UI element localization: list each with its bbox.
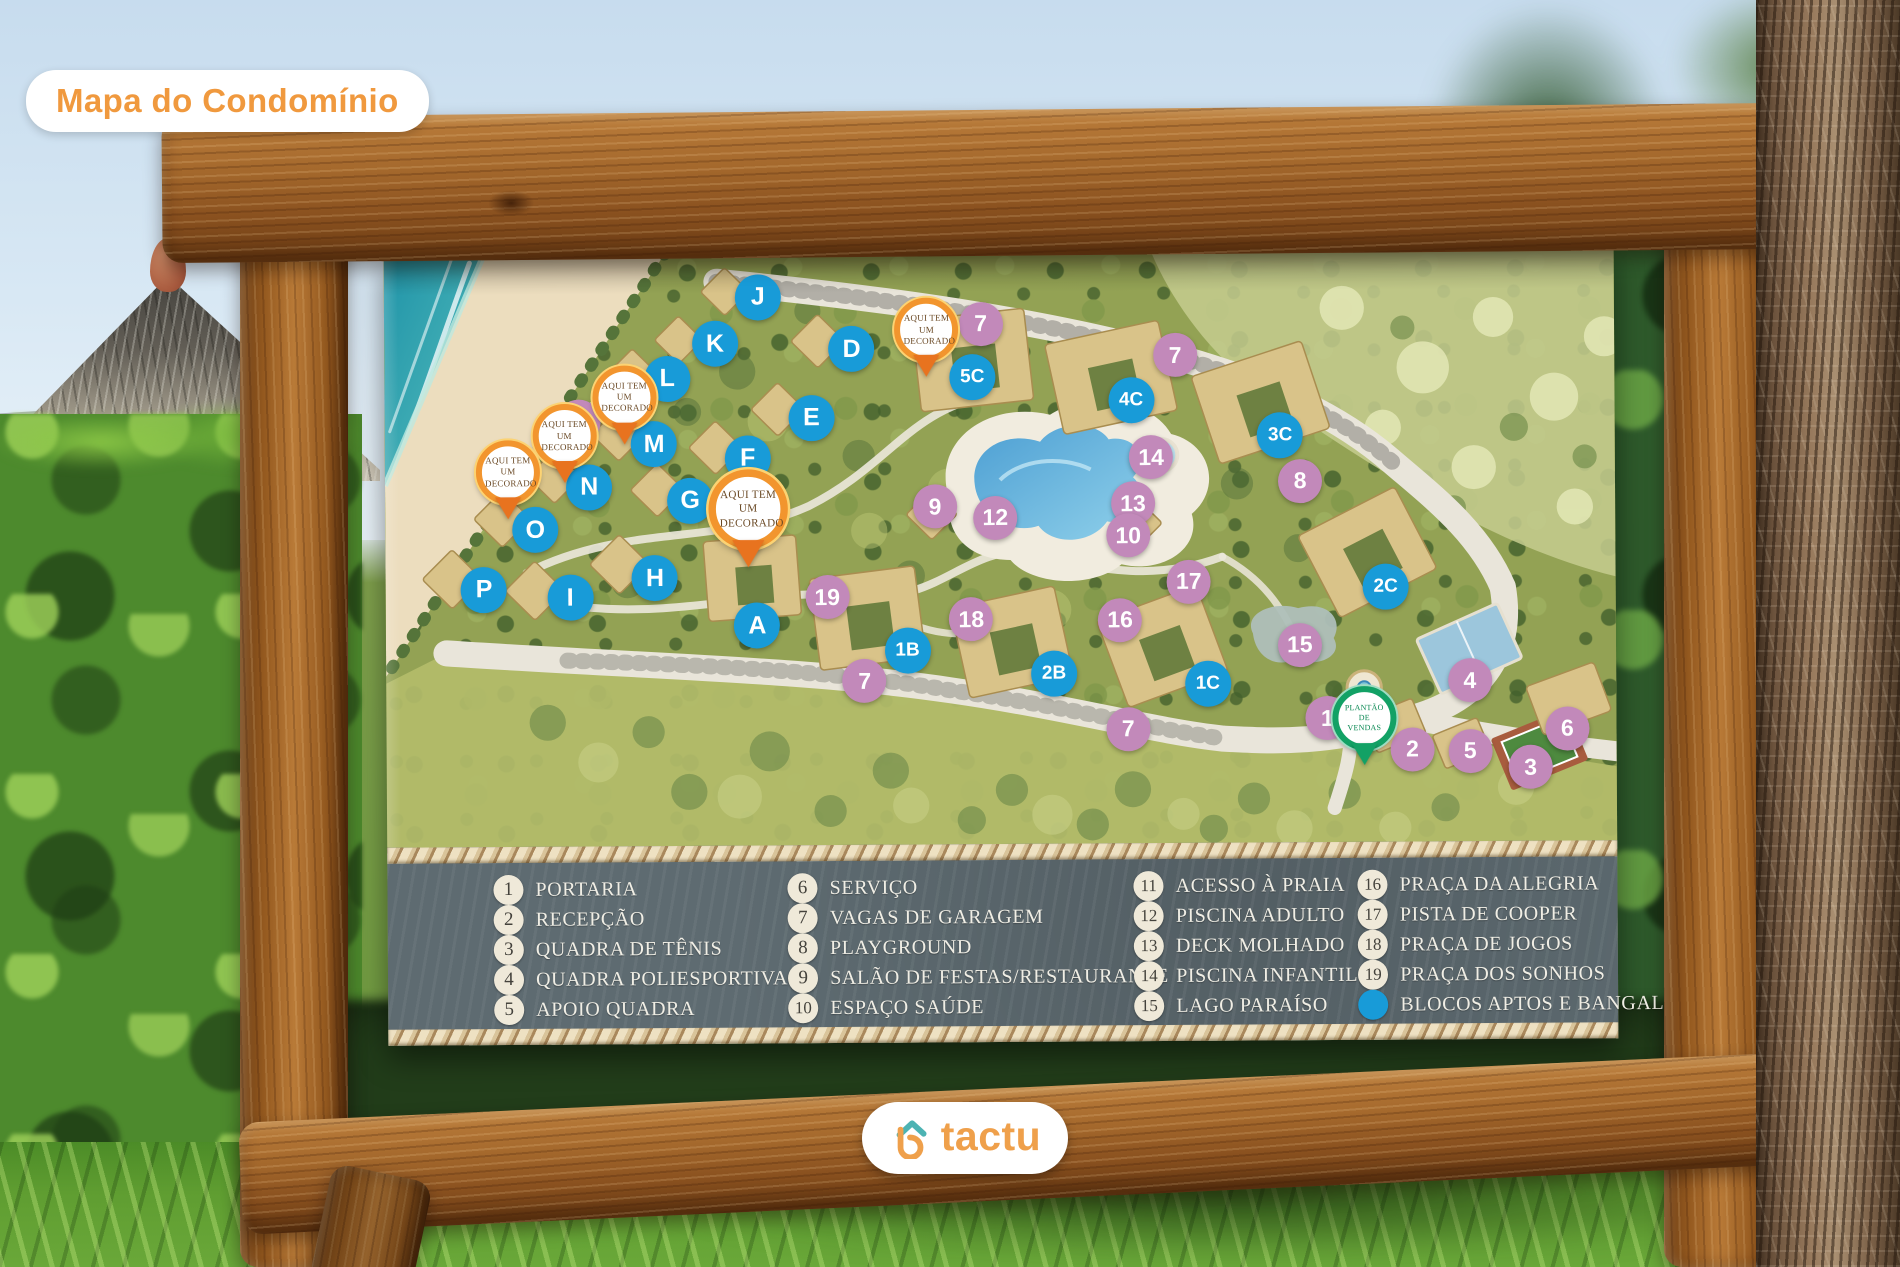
legend-item: 13DECK MOLHADO: [1134, 930, 1358, 961]
pin-circle: AQUI TEM UM DECORADO: [894, 298, 958, 362]
legend-item: 18PRAÇA DE JOGOS: [1358, 928, 1691, 960]
pin-circle: AQUI TEM UM DECORADO: [592, 365, 656, 429]
map-marker-block-4C: 4C: [1108, 377, 1154, 423]
pin-label: AQUI TEM UM DECORADO: [541, 419, 587, 453]
photo-of-sign: JKLMNOPIHADEFG5C4C3C2C1C2B1B771114891213…: [0, 0, 1900, 1267]
blocks-dot-icon: [1358, 990, 1388, 1020]
legend-item: 12PISCINA ADULTO: [1134, 900, 1358, 931]
pin-label: AQUI TEM UM DECORADO: [903, 313, 949, 347]
legend-item: 3QUADRA DE TÊNIS: [494, 933, 788, 965]
legend-label: PISTA DE COOPER: [1400, 902, 1578, 926]
map-poster: JKLMNOPIHADEFG5C4C3C2C1C2B1B771114891213…: [384, 246, 1619, 1045]
legend-label: QUADRA DE TÊNIS: [536, 937, 723, 961]
legend-columns: 1PORTARIA2RECEPÇÃO3QUADRA DE TÊNIS4QUADR…: [387, 856, 1618, 1030]
pin-label: AQUI TEM UM DECORADO: [719, 488, 776, 530]
legend-number: 17: [1358, 900, 1388, 930]
map-marker-block-1B: 1B: [884, 627, 930, 673]
palm-trunk: [1756, 0, 1900, 1267]
map-marker-amenity-10: 10: [1106, 513, 1150, 557]
map-marker-amenity-19: 19: [805, 575, 849, 619]
legend-item: 15LAGO PARAÍSO: [1134, 990, 1358, 1021]
site-map: JKLMNOPIHADEFG5C4C3C2C1C2B1B771114891213…: [384, 246, 1618, 848]
legend-item: BLOCOS APTOS E BANGALÔS: [1358, 988, 1691, 1020]
legend-item: 17PISTA DE COOPER: [1358, 898, 1691, 930]
legend-item: 16PRAÇA DA ALEGRIA: [1358, 868, 1691, 900]
map-marker-amenity-9: 9: [913, 484, 957, 528]
legend-label: PLAYGROUND: [830, 936, 972, 960]
legend-item: 14PISCINA INFANTIL: [1134, 960, 1358, 991]
map-marker-block-D: D: [828, 326, 874, 372]
legend-item: 5APOIO QUADRA: [494, 993, 788, 1025]
legend-item: 8PLAYGROUND: [788, 931, 1134, 963]
pin-tail-icon: [611, 422, 637, 444]
pin-tail-icon: [551, 461, 577, 483]
map-markers: JKLMNOPIHADEFG5C4C3C2C1C2B1B771114891213…: [384, 246, 1618, 848]
map-marker-block-J: J: [735, 274, 781, 320]
decorado-pin: AQUI TEM UM DECORADO: [592, 365, 656, 444]
legend-number: 2: [494, 905, 524, 935]
legend-label: LAGO PARAÍSO: [1176, 994, 1328, 1018]
map-marker-amenity-7: 7: [1106, 707, 1150, 751]
sales-office-pin: PLANTÃO DE VENDAS: [1332, 685, 1396, 764]
legend-number: 14: [1134, 961, 1164, 991]
map-marker-amenity-8: 8: [1278, 459, 1322, 503]
map-marker-amenity-12: 12: [973, 496, 1017, 540]
map-marker-block-P: P: [461, 567, 507, 613]
map-marker-block-E: E: [788, 395, 834, 441]
legend-label: PISCINA ADULTO: [1176, 903, 1345, 927]
tactu-logo-badge: tactu: [862, 1102, 1068, 1174]
legend-number: 10: [788, 993, 818, 1023]
decorado-pin: AQUI TEM UM DECORADO: [708, 469, 788, 567]
map-marker-amenity-5: 5: [1448, 729, 1492, 773]
legend-label: APOIO QUADRA: [536, 997, 695, 1021]
map-marker-amenity-7: 7: [958, 302, 1002, 346]
map-marker-amenity-4: 4: [1448, 658, 1492, 702]
map-marker-amenity-18: 18: [949, 598, 993, 642]
pin-tail-icon: [495, 497, 521, 519]
map-marker-block-2C: 2C: [1362, 564, 1408, 610]
pin-circle: AQUI TEM UM DECORADO: [708, 469, 788, 549]
map-marker-block-G: G: [667, 478, 713, 524]
page-title: Mapa do Condomínio: [56, 82, 399, 119]
legend-number: 15: [1134, 991, 1164, 1021]
legend-number: 6: [788, 873, 818, 903]
pin-circle: AQUI TEM UM DECORADO: [532, 404, 596, 468]
map-marker-amenity-7: 7: [1153, 333, 1197, 377]
legend-label: PRAÇA DA ALEGRIA: [1400, 872, 1600, 896]
legend-number: 9: [788, 963, 818, 993]
legend-panel: 1PORTARIA2RECEPÇÃO3QUADRA DE TÊNIS4QUADR…: [387, 840, 1618, 1046]
pin-tail-icon: [1351, 743, 1377, 765]
legend-label: ESPAÇO SAÚDE: [830, 996, 984, 1020]
legend-number: 7: [788, 903, 818, 933]
legend-label: VAGAS DE GARAGEM: [830, 905, 1044, 929]
legend-label: PORTARIA: [535, 878, 637, 902]
brand-name: tactu: [941, 1113, 1041, 1160]
legend-item: 2RECEPÇÃO: [494, 903, 788, 935]
map-marker-amenity-14: 14: [1129, 435, 1173, 479]
map-marker-block-3C: 3C: [1257, 412, 1303, 458]
legend-number: 1: [493, 875, 523, 905]
legend-label: RECEPÇÃO: [536, 908, 645, 932]
map-marker-amenity-3: 3: [1509, 745, 1553, 789]
legend-label: QUADRA POLIESPORTIVA: [536, 967, 788, 992]
pin-circle: AQUI TEM UM DECORADO: [476, 440, 540, 504]
legend-item: 6SERVIÇO: [788, 871, 1134, 903]
legend-number: 3: [494, 935, 524, 965]
map-marker-block-K: K: [692, 321, 738, 367]
map-marker-block-I: I: [547, 575, 593, 621]
legend-item: 4QUADRA POLIESPORTIVA: [494, 963, 788, 995]
map-marker-block-1C: 1C: [1185, 661, 1231, 707]
legend-label: PISCINA INFANTIL: [1176, 963, 1358, 987]
map-title-badge: Mapa do Condomínio: [26, 70, 429, 132]
legend-number: 12: [1134, 901, 1164, 931]
map-marker-amenity-6: 6: [1545, 706, 1589, 750]
map-marker-block-A: A: [734, 603, 780, 649]
legend-number: 4: [494, 965, 524, 995]
legend-number: 13: [1134, 931, 1164, 961]
legend-number: 5: [494, 995, 524, 1025]
legend-item: 1PORTARIA: [493, 873, 787, 905]
decorado-pin: AQUI TEM UM DECORADO: [894, 298, 958, 377]
tactu-house-icon: [889, 1117, 931, 1159]
legend-item: 19PRAÇA DOS SONHOS: [1358, 958, 1691, 990]
legend-label: PRAÇA DOS SONHOS: [1400, 962, 1605, 986]
pin-label: AQUI TEM UM DECORADO: [485, 455, 531, 489]
legend-label: BLOCOS APTOS E BANGALÔS: [1400, 991, 1691, 1016]
map-marker-amenity-15: 15: [1278, 623, 1322, 667]
legend-number: 11: [1134, 871, 1164, 901]
legend-label: DECK MOLHADO: [1176, 933, 1345, 957]
decorado-pin: AQUI TEM UM DECORADO: [476, 440, 540, 519]
legend-label: PRAÇA DE JOGOS: [1400, 932, 1573, 956]
map-marker-block-2B: 2B: [1031, 651, 1077, 697]
map-marker-amenity-7: 7: [843, 659, 887, 703]
map-marker-block-H: H: [632, 555, 678, 601]
pin-tail-icon: [732, 540, 764, 567]
legend-number: 16: [1358, 870, 1388, 900]
legend-number: 18: [1358, 930, 1388, 960]
legend-item: 9SALÃO DE FESTAS/RESTAURANTE: [788, 961, 1134, 993]
legend-label: SERVIÇO: [830, 876, 918, 900]
sign-post-left: [240, 126, 348, 1267]
map-marker-amenity-16: 16: [1098, 598, 1142, 642]
legend-label: ACESSO À PRAIA: [1176, 873, 1346, 897]
pin-label: AQUI TEM UM DECORADO: [601, 380, 647, 414]
legend-number: 19: [1358, 960, 1388, 990]
map-marker-amenity-2: 2: [1390, 727, 1434, 771]
pin-circle: PLANTÃO DE VENDAS: [1332, 685, 1396, 749]
legend-item: 7VAGAS DE GARAGEM: [788, 901, 1134, 933]
decorado-pin: AQUI TEM UM DECORADO: [532, 404, 596, 483]
legend-label: SALÃO DE FESTAS/RESTAURANTE: [830, 964, 1169, 989]
legend-number: 8: [788, 933, 818, 963]
pin-tail-icon: [914, 355, 940, 377]
legend-item: 11ACESSO À PRAIA: [1134, 870, 1358, 901]
map-marker-amenity-17: 17: [1167, 559, 1211, 603]
pin-label: PLANTÃO DE VENDAS: [1342, 703, 1386, 733]
legend-item: 10ESPAÇO SAÚDE: [788, 991, 1134, 1023]
